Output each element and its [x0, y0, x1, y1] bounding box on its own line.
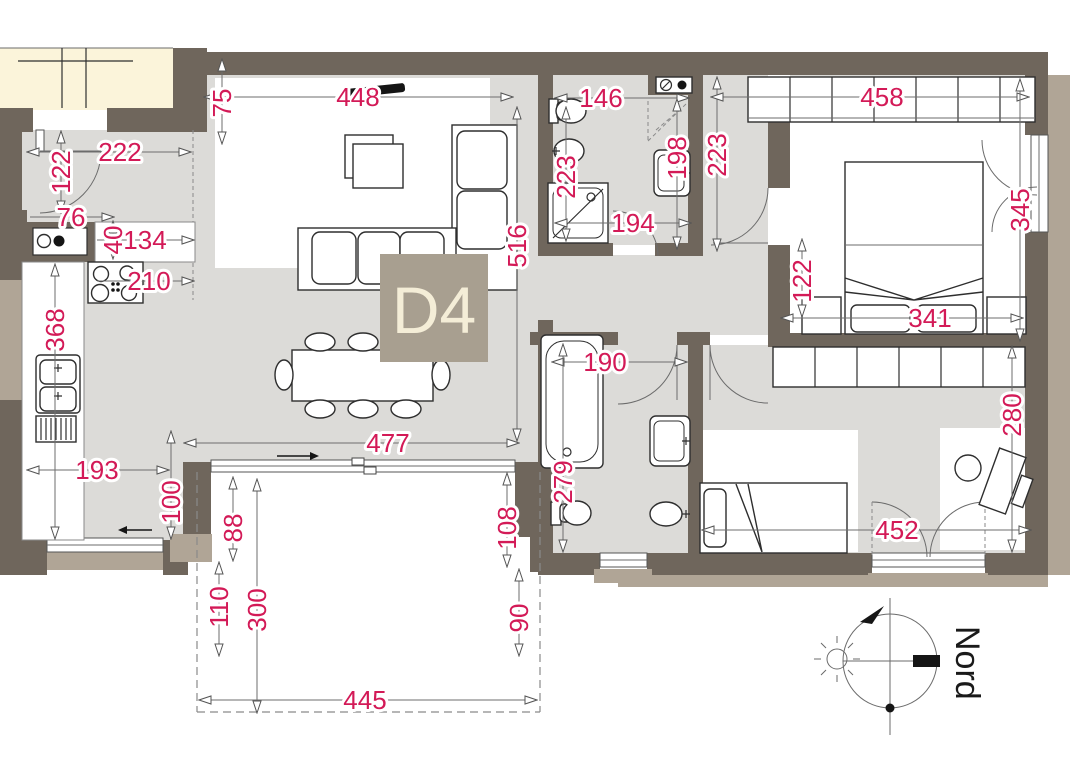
dim-entry-width: 222	[98, 137, 141, 167]
kitchen-window-sill	[47, 552, 163, 570]
dim-niche-width: 76	[57, 202, 86, 232]
east-wall-lower	[1025, 345, 1048, 555]
dim-living-width: 477	[366, 428, 409, 458]
north-label: Nord	[948, 626, 986, 700]
kitchen-sink-drain	[54, 236, 65, 247]
south-wall-mid	[647, 553, 872, 575]
dim-balcony-right-side: 90	[504, 604, 534, 633]
dim-bath1-width: 146	[579, 83, 622, 113]
floor-plan-page: 448 75 222 122 76 40 134 210 368 193 100…	[0, 0, 1076, 780]
balcony-pillar-left-foot	[170, 534, 212, 562]
cooktop-knob	[111, 282, 115, 286]
dim-entry-door: 122	[46, 150, 76, 193]
dim-bed-width: 341	[908, 303, 951, 333]
dim-bedroom2-length: 280	[997, 393, 1027, 436]
dim-hall-door-width: 190	[583, 347, 626, 377]
hall-floor	[538, 255, 768, 333]
sliding-handle	[352, 458, 364, 465]
sliding-handle	[364, 467, 376, 474]
south-wall-right	[985, 553, 1048, 575]
sofa-cushion	[312, 232, 356, 284]
sofa-cushion	[457, 131, 507, 189]
dining-chair	[275, 360, 293, 390]
compass-north-pointer	[913, 655, 940, 667]
dim-cooktop-width: 210	[127, 266, 170, 296]
desk-chair	[955, 455, 981, 481]
dim-balcony-left-side: 110	[204, 586, 234, 627]
sofa-cushion	[457, 191, 507, 249]
north-wall-return	[183, 75, 207, 93]
dining-chair	[348, 400, 378, 418]
dim-bath2-length: 279	[548, 460, 578, 503]
dim-living-length: 516	[502, 224, 532, 267]
dim-balcony-depth: 300	[242, 588, 272, 631]
sun-icon	[814, 636, 860, 682]
dim-bath1-sink-wall: 198	[662, 136, 692, 179]
dim-top-offset: 75	[207, 89, 237, 118]
unit-tag: D4	[380, 254, 488, 362]
dining-chair	[432, 360, 450, 390]
dining-chair	[305, 333, 335, 351]
west-wall-lower	[0, 400, 22, 543]
entry-door-leaf	[36, 130, 44, 152]
dim-bath1-length: 223	[551, 155, 581, 198]
north-exterior-wall	[183, 52, 1048, 75]
south-outer-band	[618, 575, 1048, 587]
drain-rack-lines	[41, 418, 71, 440]
dim-balcony-width: 445	[343, 685, 386, 715]
cooktop-knob	[116, 288, 120, 292]
dim-kitchen-length: 368	[40, 308, 70, 351]
cooktop-burner	[94, 267, 109, 282]
south-wall-bath2	[538, 553, 600, 575]
cooktop-knob	[111, 288, 115, 292]
dim-balcony-offset-left: 88	[218, 514, 248, 543]
dining-chair	[305, 400, 335, 418]
west-wall-light	[0, 280, 22, 400]
bedrooms-divider-wall	[768, 333, 1035, 347]
bidet2	[650, 502, 682, 526]
dim-living-top-width: 448	[336, 82, 379, 112]
bedroom1-left-wall-upper	[768, 122, 790, 188]
washing-machine-knob	[678, 81, 687, 90]
dim-kitchen-width: 193	[75, 455, 118, 485]
dim-bedroom2-width: 452	[875, 515, 918, 545]
dim-wardrobe-width: 458	[860, 82, 903, 112]
unit-tag-label: D4	[392, 273, 476, 347]
compass-south-dot	[886, 704, 895, 713]
southwest-corner-wall	[0, 540, 47, 575]
single-bed-pillow	[704, 489, 726, 547]
dim-bedroom1-window: 345	[1005, 188, 1035, 231]
dining-chair	[391, 400, 421, 418]
compass: Nord	[814, 598, 986, 735]
dim-balcony-offset-right: 108	[492, 506, 522, 549]
dim-bed-offset: 122	[787, 259, 817, 302]
entry-top-wall-left	[0, 108, 33, 132]
hall-bottom-wall-mid	[677, 332, 710, 345]
floor-plan-drawing: 448 75 222 122 76 40 134 210 368 193 100…	[0, 0, 1076, 780]
bath1-bottom-wall	[538, 243, 613, 256]
cooktop-knob	[116, 282, 120, 286]
entry-top-wall-right	[107, 108, 207, 132]
coffee-table-2	[353, 144, 403, 188]
dim-counter-width: 134	[123, 225, 166, 255]
cooktop-burner	[92, 285, 109, 302]
dim-bath1-bottom-width: 194	[611, 208, 654, 238]
washing-machine	[656, 77, 692, 93]
east-wall-mid	[1025, 232, 1048, 345]
kitchen-sink-bowl	[38, 235, 51, 248]
dim-corridor-length: 223	[702, 133, 732, 176]
dining-chair	[348, 333, 378, 351]
east-outer-band	[1048, 75, 1070, 575]
dim-kitchen-window-offset: 100	[156, 480, 186, 523]
